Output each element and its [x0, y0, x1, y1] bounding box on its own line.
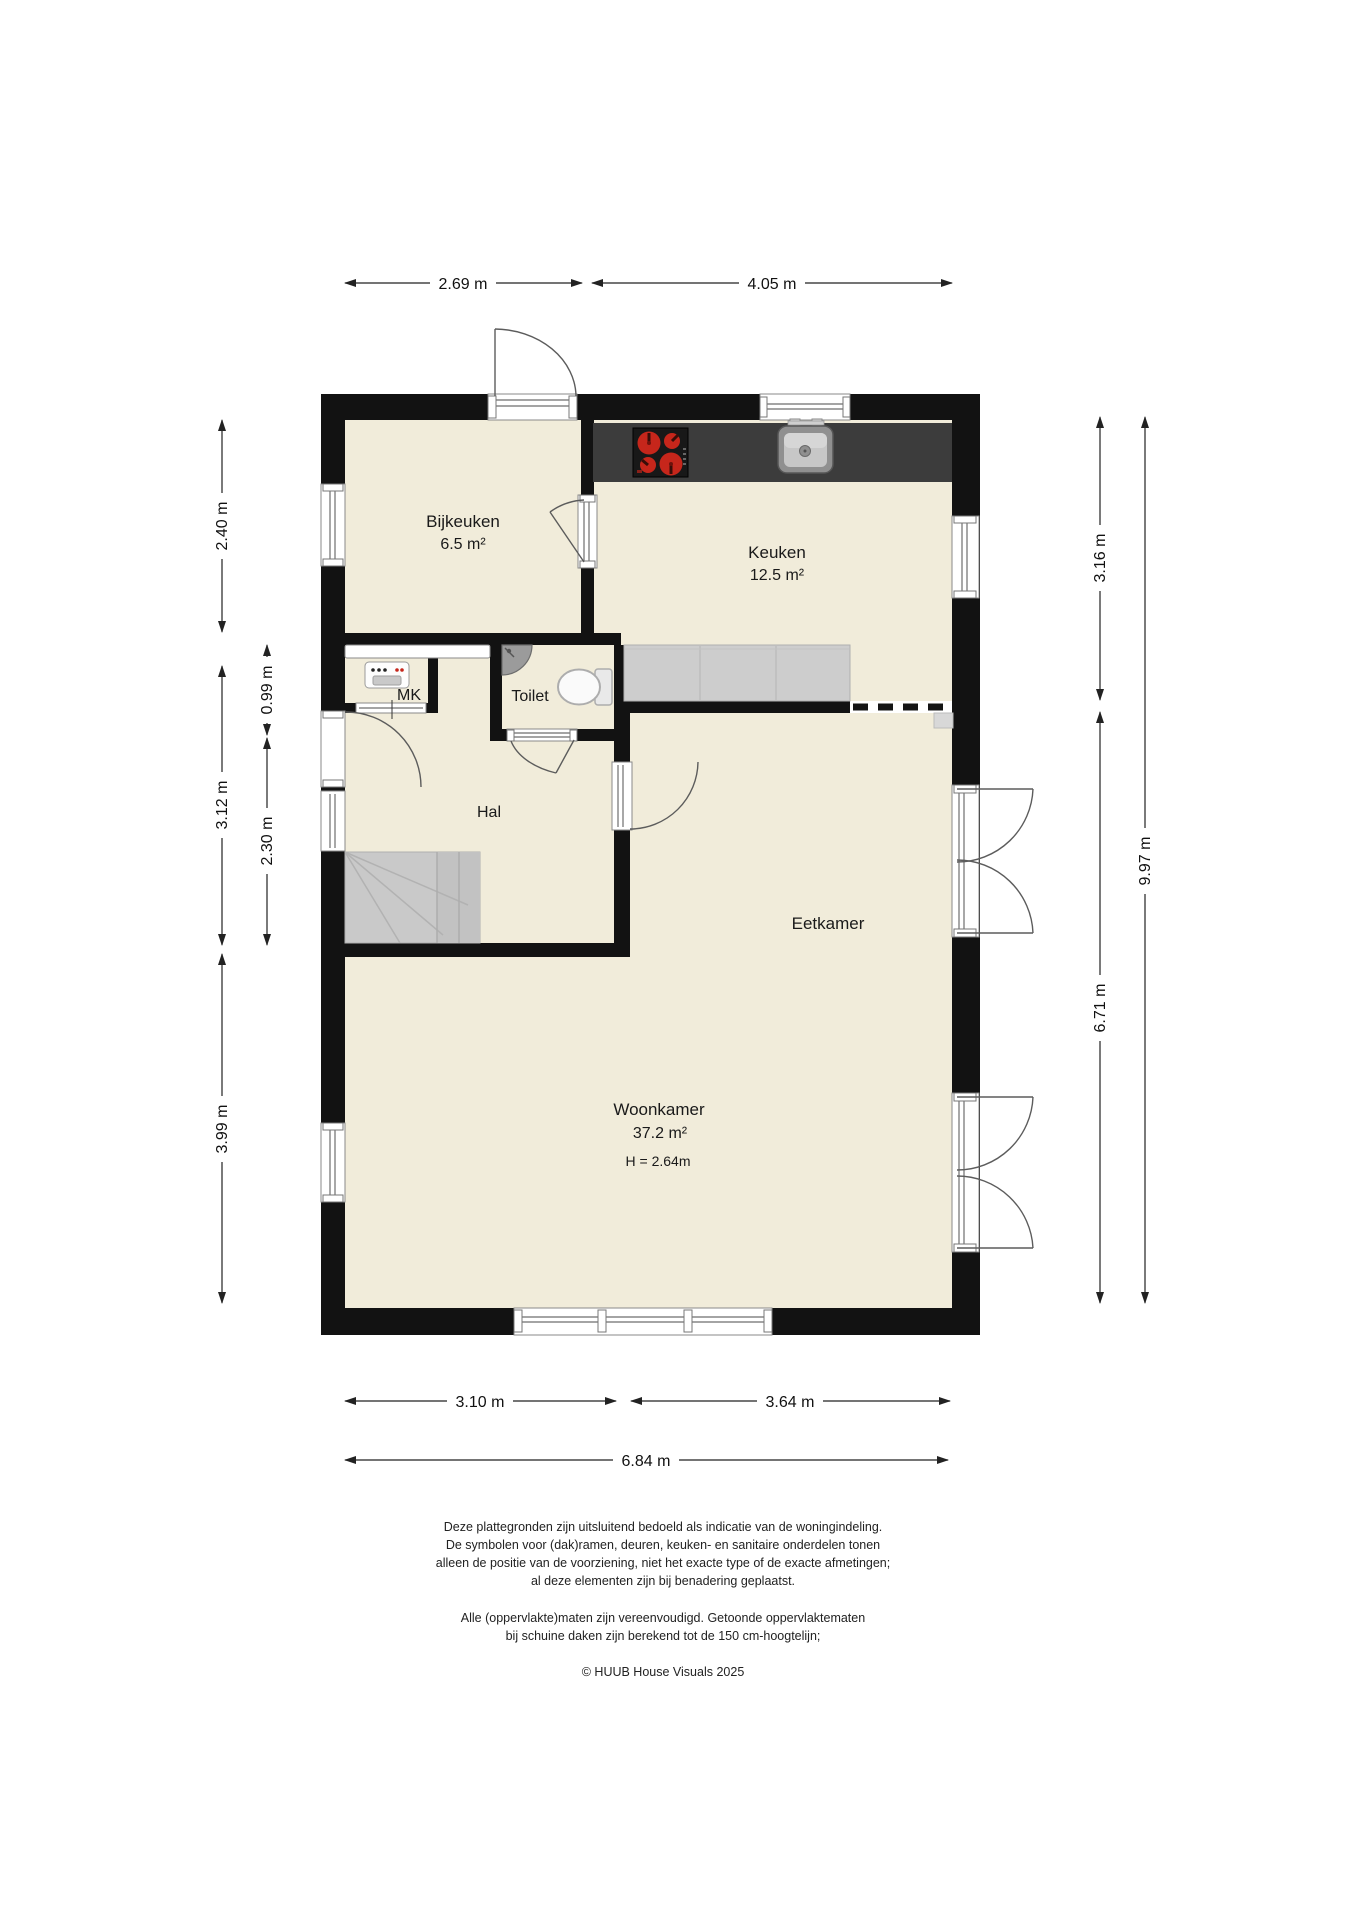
meter-box-icon — [365, 662, 409, 688]
dim-bottom-1: 3.10 m — [456, 1394, 505, 1411]
toilet-icon — [558, 669, 612, 705]
window-icon-hal — [321, 791, 345, 851]
room-label-mk: MK — [397, 687, 421, 704]
floor-plan-page: Bijkeuken 6.5 m² Keuken 12.5 m² Toilet M… — [0, 0, 1358, 1920]
wall-bijkeuken-bottom — [345, 633, 621, 645]
wall-notch — [934, 713, 953, 728]
dim-right-2: 6.71 m — [1092, 984, 1109, 1033]
dim-bottom-total: 6.84 m — [622, 1453, 671, 1470]
dim-left-3: 3.99 m — [214, 1105, 231, 1154]
front-door-icon — [321, 711, 345, 787]
stove-icon — [633, 428, 688, 477]
kitchen-counter-light — [624, 645, 850, 701]
wall-keuken-bottom — [614, 701, 850, 713]
footer-disclaimer-2: De symbolen voor (dak)ramen, deuren, keu… — [446, 1538, 880, 1552]
room-area-keuken: 12.5 m² — [750, 567, 805, 584]
sink-icon — [778, 419, 833, 473]
window-icon-keuken-right — [952, 516, 979, 598]
footer: Deze plattegronden zijn uitsluitend bedo… — [436, 1520, 890, 1679]
footer-note-2: bij schuine daken zijn berekend tot de 1… — [506, 1629, 821, 1643]
room-area-woonkamer: 37.2 m² — [633, 1125, 688, 1142]
window-icon-woonkamer — [321, 1123, 345, 1202]
room-label-keuken: Keuken — [748, 543, 806, 562]
french-doors-icon-eetkamer — [952, 785, 1033, 937]
footer-disclaimer-4: al deze elementen zijn bij benadering ge… — [531, 1574, 795, 1588]
mk-door-icon — [356, 703, 426, 713]
room-label-woonkamer: Woonkamer — [613, 1100, 705, 1119]
dim-left-inner-1: 0.99 m — [259, 666, 276, 715]
dim-top-2: 4.05 m — [748, 276, 797, 293]
dim-right-total: 9.97 m — [1137, 837, 1154, 886]
dim-right-1: 3.16 m — [1092, 534, 1109, 583]
window-icon-bottom — [514, 1308, 772, 1335]
room-label-bijkeuken: Bijkeuken — [426, 512, 500, 531]
footer-disclaimer-1: Deze plattegronden zijn uitsluitend bedo… — [444, 1520, 883, 1534]
ceiling-height-note: H = 2.64m — [626, 1153, 691, 1169]
floor-plan-canvas: Bijkeuken 6.5 m² Keuken 12.5 m² Toilet M… — [0, 0, 1358, 1920]
room-label-hal: Hal — [477, 804, 501, 821]
stairs-icon — [345, 852, 480, 943]
wall-hal-bottom — [321, 943, 630, 957]
footer-copyright: © HUUB House Visuals 2025 — [582, 1665, 745, 1679]
dim-left-inner-2: 2.30 m — [259, 817, 276, 866]
window-icon-bijkeuken — [321, 484, 345, 566]
wall-bijkeuken-keuken-upper — [581, 420, 594, 495]
entry-door-icon — [488, 394, 577, 420]
wall-cabinet-band — [345, 645, 490, 658]
wall-mk-stub-right — [426, 703, 438, 713]
room-area-bijkeuken: 6.5 m² — [440, 536, 486, 553]
french-doors-icon-woonkamer — [952, 1093, 1033, 1252]
toilet-door-icon — [507, 729, 577, 741]
dim-left-1: 2.40 m — [214, 502, 231, 551]
footer-note-1: Alle (oppervlakte)maten zijn vereenvoudi… — [461, 1611, 865, 1625]
wall-mk-right — [428, 656, 438, 705]
wall-toilet-left — [490, 645, 502, 741]
room-label-toilet: Toilet — [511, 688, 549, 705]
footer-disclaimer-3: alleen de positie van de voorziening, ni… — [436, 1556, 890, 1570]
room-label-eetkamer: Eetkamer — [792, 914, 865, 933]
dim-bottom-2: 3.64 m — [766, 1394, 815, 1411]
hal-door-icon — [612, 762, 632, 830]
dim-top-1: 2.69 m — [439, 276, 488, 293]
window-icon-top — [760, 394, 850, 420]
dim-left-2: 3.12 m — [214, 781, 231, 830]
